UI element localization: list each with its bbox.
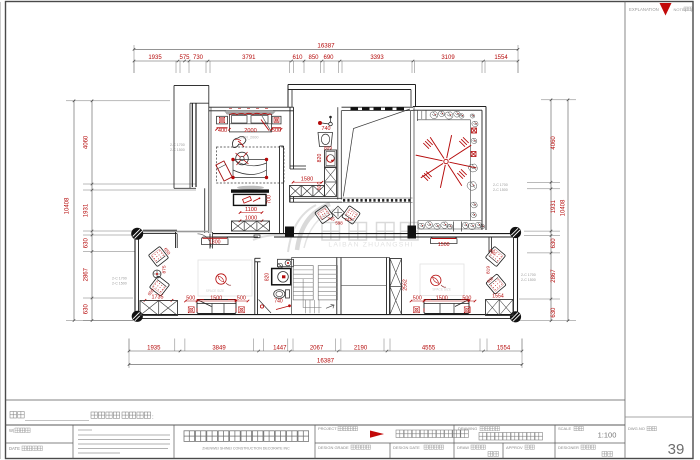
- svg-text:SCALE: SCALE: [558, 426, 571, 431]
- svg-text:1935: 1935: [147, 345, 161, 351]
- svg-text:2-C 1700: 2-C 1700: [170, 143, 185, 147]
- svg-text:2-C 1500: 2-C 1500: [112, 282, 127, 286]
- svg-text:DRAWING: DRAWING: [458, 426, 477, 431]
- svg-text:2-C 1500: 2-C 1500: [493, 188, 508, 192]
- svg-text:EXPLANATION: EXPLANATION: [629, 7, 659, 12]
- svg-text:SPACE SIZE: SPACE SIZE: [432, 288, 451, 292]
- svg-text:1447: 1447: [273, 345, 287, 351]
- svg-text:SPACE SIZE: SPACE SIZE: [206, 289, 225, 293]
- svg-text:610: 610: [292, 55, 303, 61]
- svg-text:500: 500: [186, 295, 195, 301]
- svg-text:690: 690: [323, 55, 334, 61]
- svg-text:1500: 1500: [438, 242, 450, 248]
- svg-text:4555: 4555: [422, 345, 436, 351]
- svg-text:3791: 3791: [242, 55, 256, 61]
- svg-text:2-C 1700: 2-C 1700: [521, 273, 536, 277]
- svg-text:39: 39: [668, 441, 685, 458]
- svg-text:1500: 1500: [436, 295, 448, 301]
- svg-text:2000: 2000: [244, 128, 256, 134]
- svg-text:1735: 1735: [152, 295, 164, 301]
- svg-text:16387: 16387: [317, 357, 335, 364]
- svg-text:2867: 2867: [84, 267, 90, 281]
- svg-text:820: 820: [265, 273, 271, 282]
- svg-text:730: 730: [193, 55, 204, 61]
- svg-text:NOTE(: NOTE(: [674, 7, 687, 12]
- svg-text:500: 500: [272, 128, 281, 134]
- svg-text:850: 850: [308, 55, 319, 61]
- svg-text:2067: 2067: [310, 345, 324, 351]
- svg-text:1000: 1000: [245, 215, 257, 221]
- svg-text:DRAW: DRAW: [457, 445, 469, 450]
- svg-text:1931: 1931: [84, 203, 90, 217]
- svg-text:630: 630: [84, 304, 90, 315]
- svg-text:2867: 2867: [551, 269, 557, 283]
- svg-text:1554: 1554: [494, 55, 508, 61]
- svg-text:DESIGN DATE: DESIGN DATE: [393, 445, 420, 450]
- svg-text:400: 400: [218, 128, 227, 134]
- svg-text:500: 500: [413, 295, 422, 301]
- svg-text:3393: 3393: [370, 55, 384, 61]
- svg-text:2-C 1500: 2-C 1500: [170, 148, 185, 152]
- svg-text:820: 820: [317, 154, 323, 163]
- svg-text:630: 630: [551, 307, 557, 318]
- svg-text:1:100: 1:100: [598, 431, 617, 440]
- svg-text:ZHENWEI SHINEI CONSTRUCTION DE: ZHENWEI SHINEI CONSTRUCTION DECORATE INC: [202, 447, 290, 451]
- svg-text:743: 743: [344, 217, 352, 222]
- svg-text:2190: 2190: [354, 345, 368, 351]
- svg-text:4060: 4060: [84, 135, 90, 149]
- svg-text:DESIGN GRADE: DESIGN GRADE: [318, 445, 349, 450]
- svg-text:DOR_2000: DOR_2000: [240, 135, 259, 139]
- svg-text:APPROV: APPROV: [506, 445, 523, 450]
- svg-text:875: 875: [162, 265, 168, 273]
- svg-text:10408: 10408: [65, 197, 71, 214]
- svg-text:598: 598: [335, 221, 343, 226]
- svg-text:10408: 10408: [561, 199, 567, 216]
- svg-text:630: 630: [84, 238, 90, 249]
- svg-text:2-C 1500: 2-C 1500: [521, 278, 536, 282]
- svg-text:LAIBAN ZHUANGSHI: LAIBAN ZHUANGSHI: [328, 242, 413, 249]
- svg-text:1935: 1935: [148, 55, 162, 61]
- svg-text:DWG.NO: DWG.NO: [628, 426, 645, 431]
- svg-text:1300: 1300: [209, 239, 221, 245]
- svg-text:740: 740: [274, 299, 283, 305]
- svg-text:1500: 1500: [210, 295, 222, 301]
- svg-text:DESIGNER: DESIGNER: [558, 445, 579, 450]
- svg-text:2562: 2562: [403, 279, 409, 291]
- svg-text:2-C 1700: 2-C 1700: [112, 277, 127, 281]
- svg-text:3849: 3849: [212, 345, 226, 351]
- svg-text:PROJECT: PROJECT: [318, 426, 337, 431]
- svg-text:809: 809: [324, 146, 332, 152]
- svg-text:2-C 1700: 2-C 1700: [493, 183, 508, 187]
- svg-text:1554: 1554: [497, 345, 511, 351]
- svg-text:630: 630: [551, 238, 557, 249]
- svg-text:1100: 1100: [245, 207, 257, 213]
- svg-text:1580: 1580: [301, 177, 313, 183]
- svg-text:500: 500: [237, 295, 246, 301]
- svg-text:745: 745: [327, 217, 335, 222]
- svg-text:575: 575: [179, 55, 190, 61]
- svg-text:W(: W(: [9, 428, 15, 433]
- svg-text:16387: 16387: [317, 42, 335, 49]
- svg-text:4060: 4060: [551, 136, 557, 150]
- svg-text:819: 819: [485, 266, 491, 274]
- svg-text:1554: 1554: [492, 293, 504, 299]
- svg-text:1931: 1931: [551, 199, 557, 213]
- svg-text:740: 740: [322, 126, 331, 132]
- svg-text:3109: 3109: [441, 55, 455, 61]
- svg-text:DATE: DATE: [9, 446, 20, 451]
- svg-text:700: 700: [267, 195, 273, 204]
